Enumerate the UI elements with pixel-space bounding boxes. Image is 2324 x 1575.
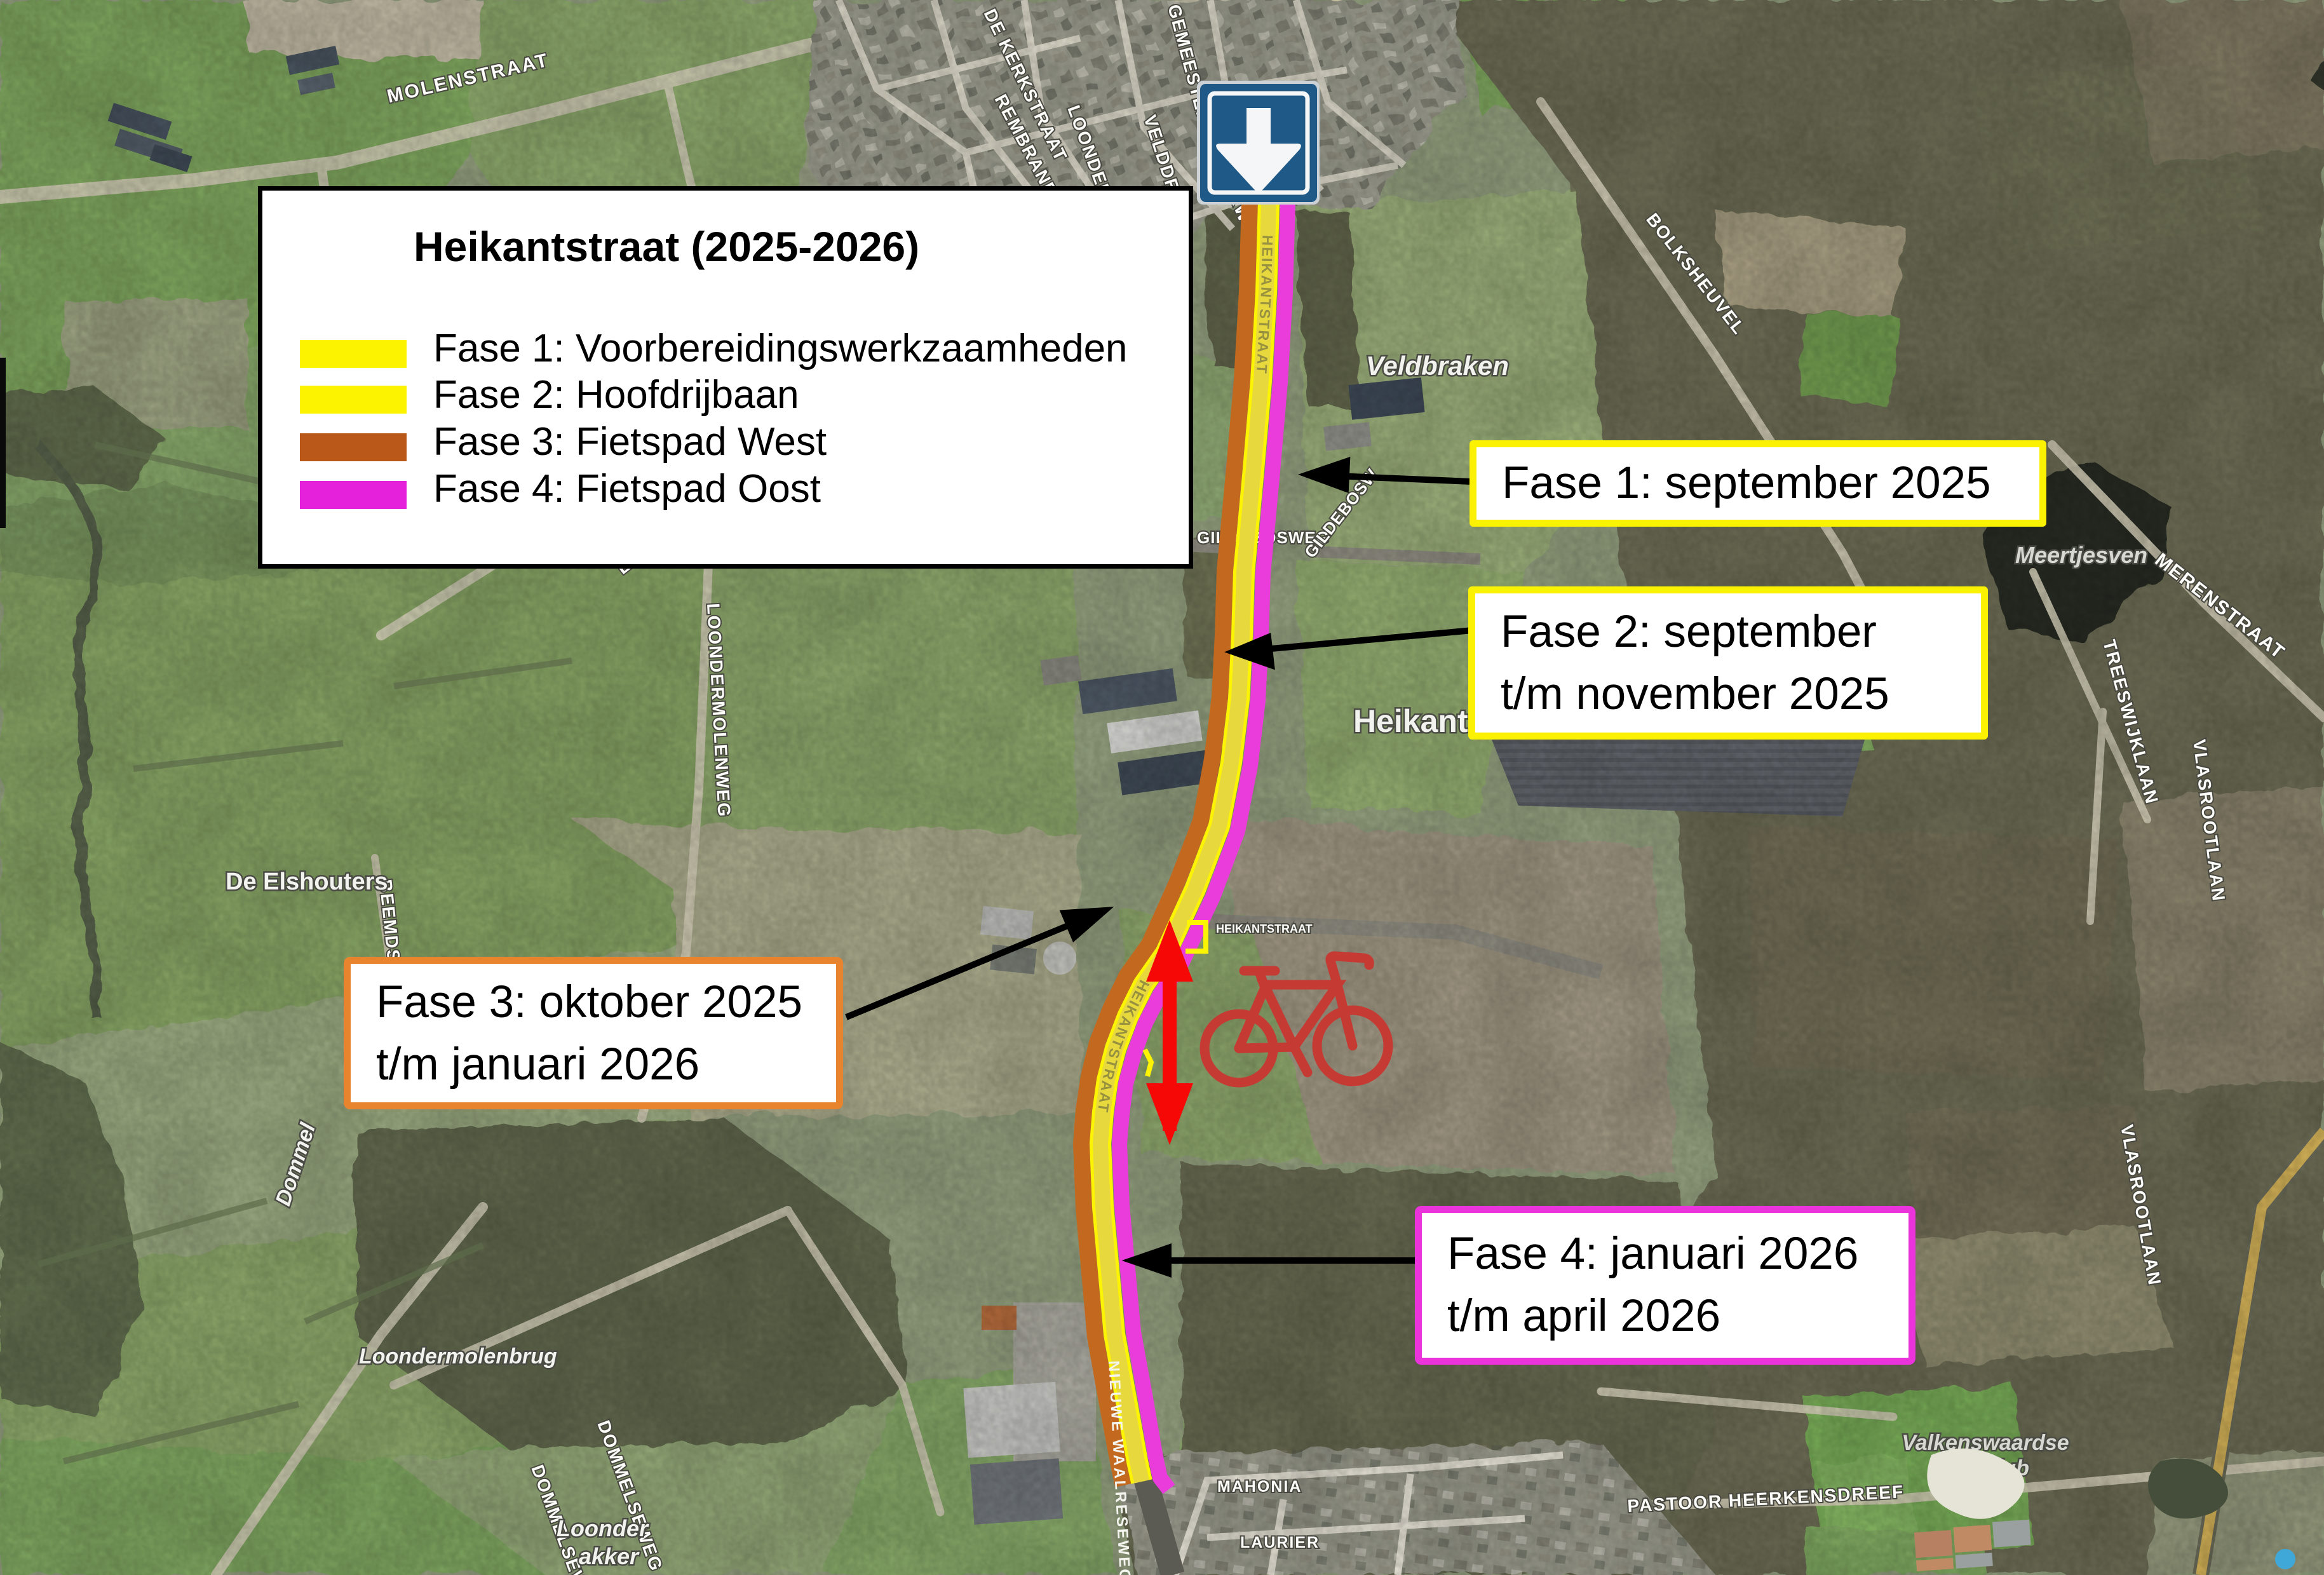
svg-text:Meertjesven: Meertjesven (2015, 542, 2147, 568)
svg-text:Loondermolenbrug: Loondermolenbrug (359, 1344, 557, 1369)
svg-text:Valkenswaardse: Valkenswaardse (1902, 1431, 2069, 1455)
svg-text:HEIKANTSTRAAT: HEIKANTSTRAAT (1216, 923, 1313, 935)
svg-text:De Elshouters: De Elshouters (226, 869, 388, 895)
svg-text:LAURIER: LAURIER (1240, 1534, 1320, 1551)
svg-text:Heikant: Heikant (1353, 703, 1468, 739)
svg-text:Veldbraken: Veldbraken (1366, 351, 1509, 381)
svg-text:Loonder: Loonder (557, 1515, 649, 1541)
svg-text:akker: akker (579, 1543, 640, 1569)
svg-text:MAHONIA: MAHONIA (1217, 1478, 1302, 1496)
